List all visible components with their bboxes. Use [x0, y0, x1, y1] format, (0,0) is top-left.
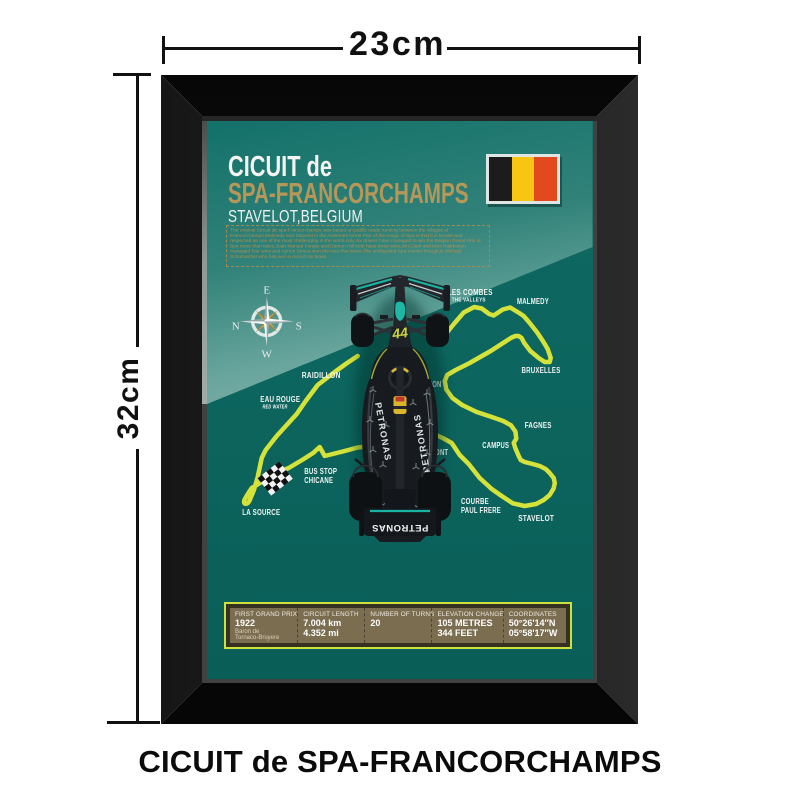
svg-text:COURBE: COURBE	[461, 497, 489, 506]
svg-text:LA SOURCE: LA SOURCE	[242, 508, 280, 517]
svg-text:BRUXELLES: BRUXELLES	[522, 366, 561, 375]
svg-text:CHICANE: CHICANE	[304, 476, 333, 485]
svg-text:FAGNES: FAGNES	[525, 421, 552, 430]
svg-text:MALMEDY: MALMEDY	[517, 297, 549, 306]
svg-text:N: N	[232, 320, 240, 332]
svg-text:W: W	[262, 348, 273, 360]
svg-text:EAU ROUGE: EAU ROUGE	[260, 395, 300, 404]
svg-text:THE VALLEYS: THE VALLEYS	[452, 298, 486, 304]
svg-text:CAMPUS: CAMPUS	[482, 441, 509, 450]
svg-text:BUS STOP: BUS STOP	[304, 467, 337, 476]
svg-text:44: 44	[390, 324, 409, 342]
svg-text:PAUL FRERE: PAUL FRERE	[461, 506, 501, 515]
svg-text:RAIDILLON: RAIDILLON	[302, 371, 341, 380]
svg-text:S: S	[296, 320, 302, 332]
svg-text:E: E	[263, 284, 270, 296]
svg-text:STAVELOT: STAVELOT	[518, 514, 554, 523]
svg-text:RED WATER: RED WATER	[263, 405, 288, 411]
svg-text:PETRONAS: PETRONAS	[372, 522, 429, 533]
